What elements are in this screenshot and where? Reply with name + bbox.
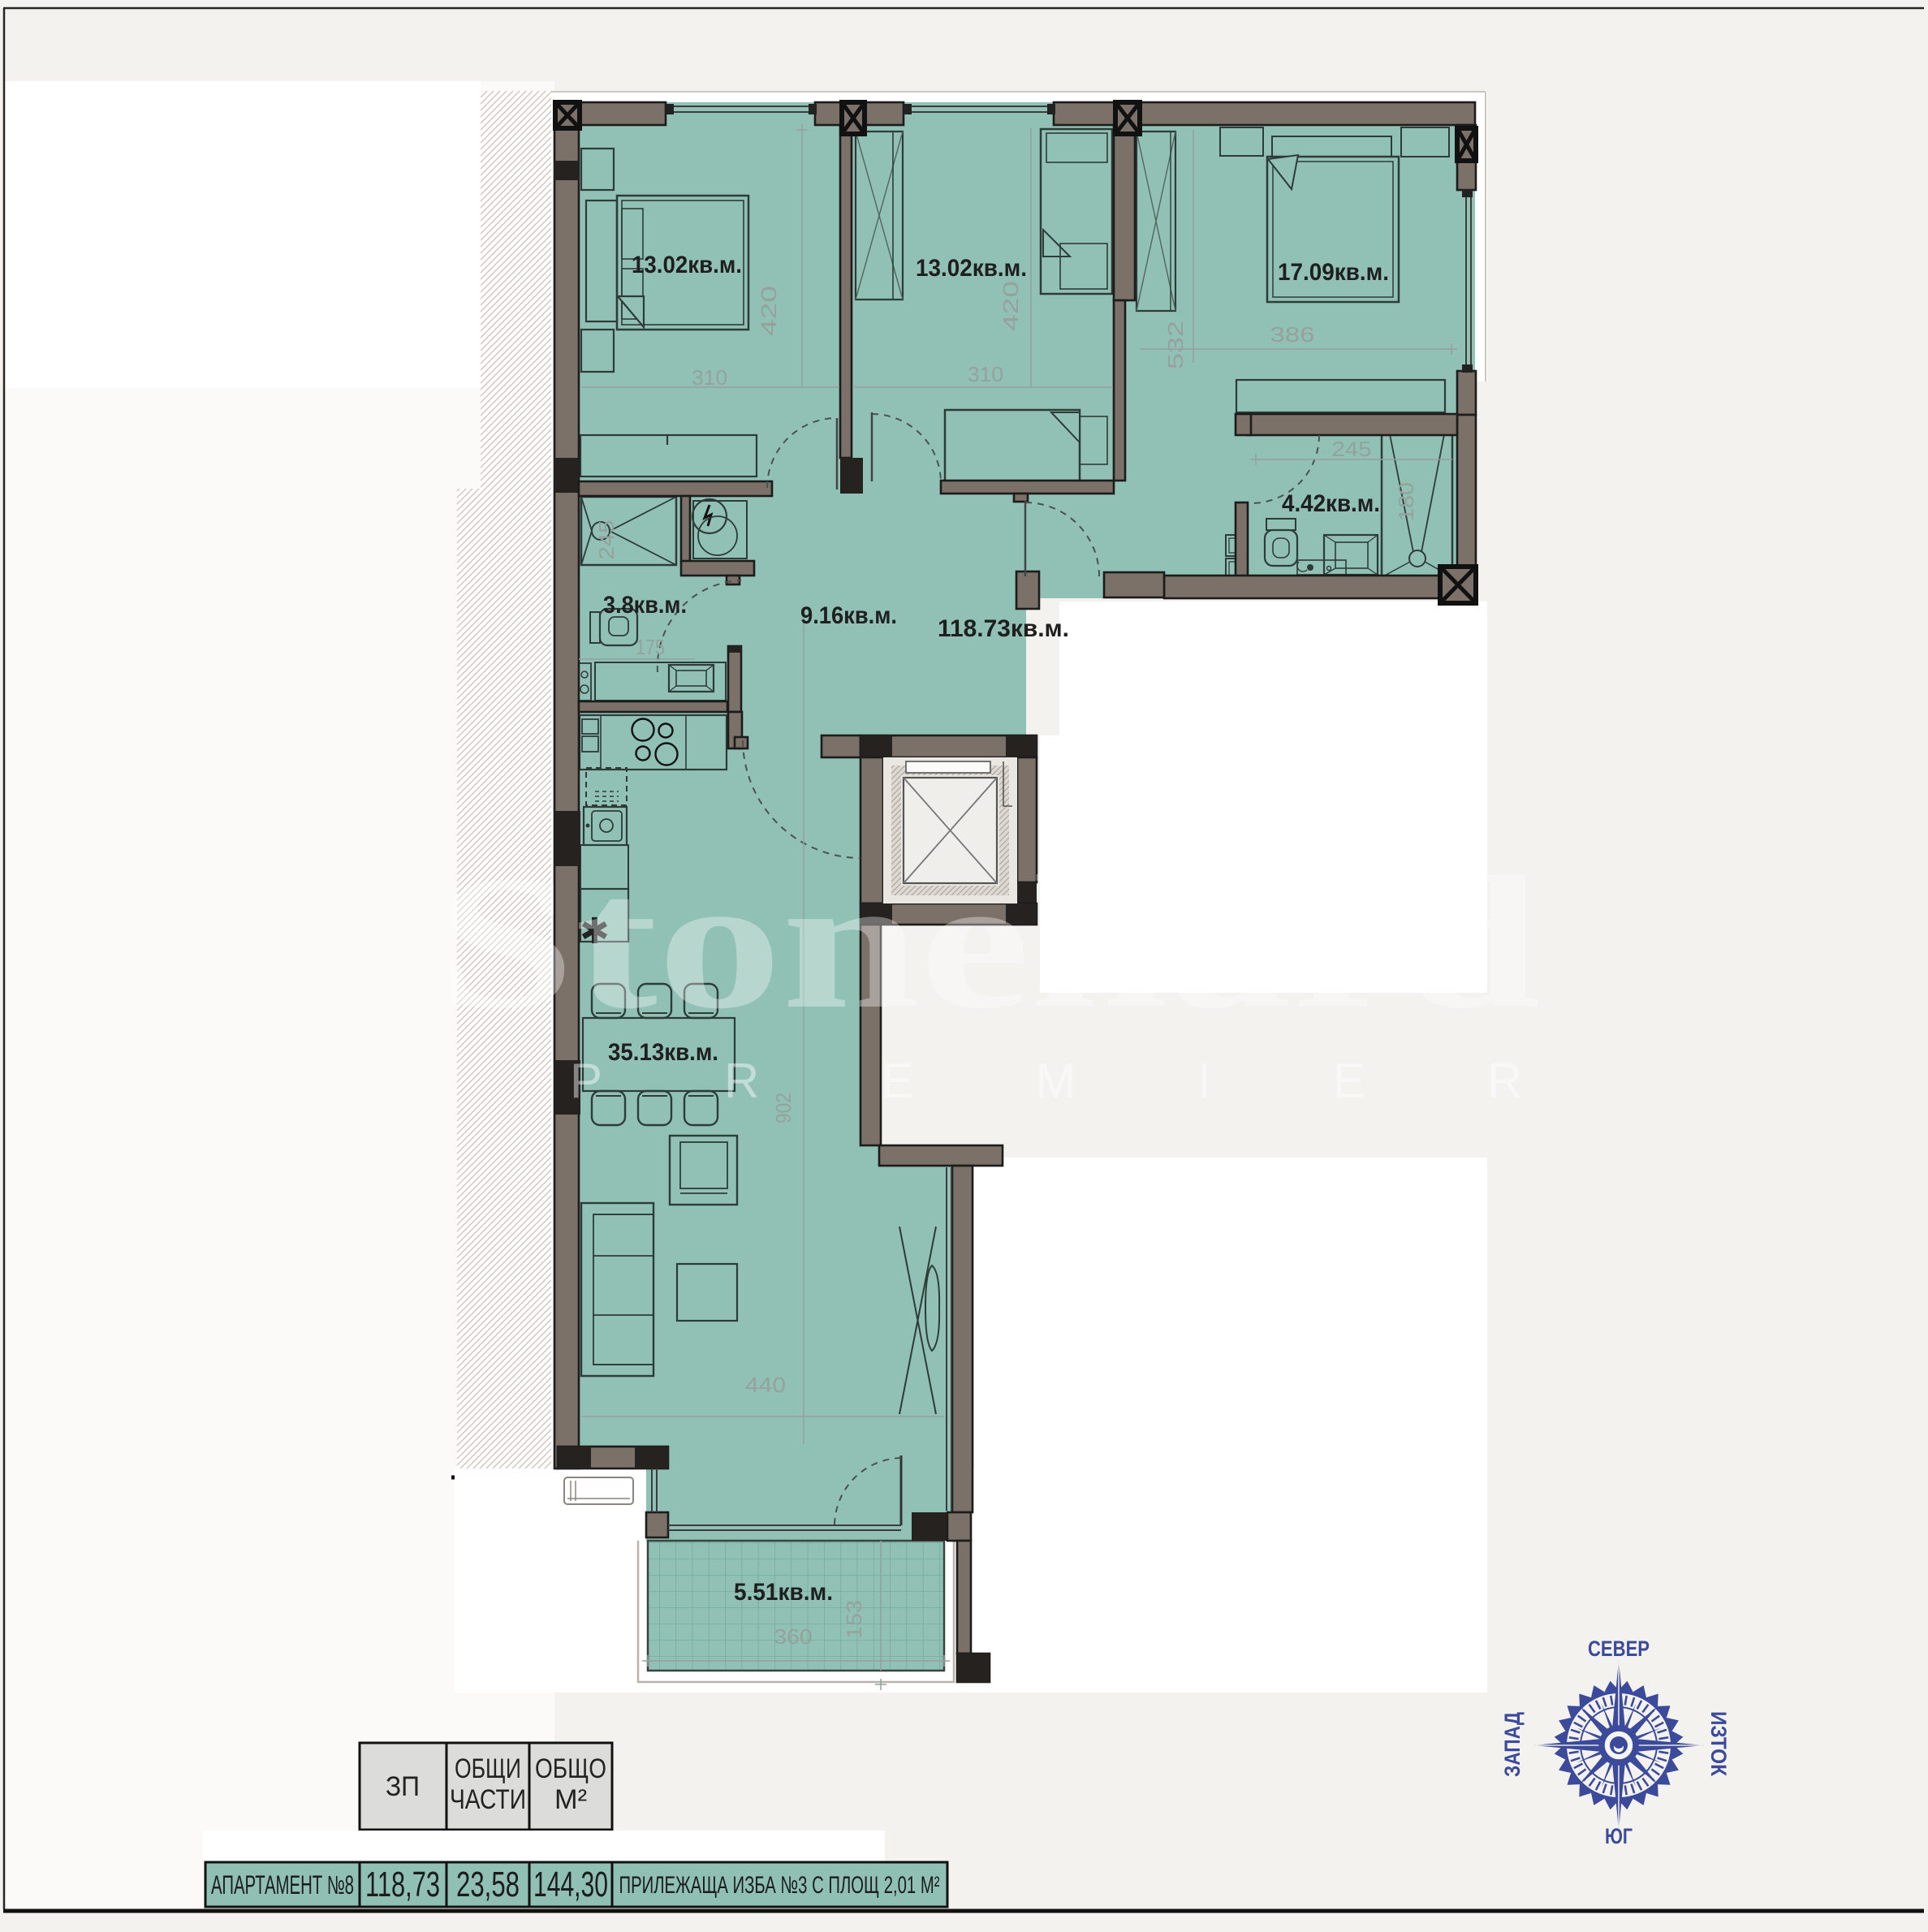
svg-text:245: 245	[594, 520, 619, 560]
svg-text:360: 360	[774, 1624, 813, 1649]
svg-text:118.73кв.м.: 118.73кв.м.	[938, 615, 1069, 642]
svg-text:PREMIER: PREMIER	[570, 1054, 1644, 1108]
svg-text:180: 180	[1394, 482, 1418, 521]
svg-text:ИЗТОК: ИЗТОК	[1706, 1711, 1731, 1776]
svg-text:420: 420	[757, 286, 781, 336]
svg-text:245: 245	[1332, 437, 1372, 461]
svg-text:310: 310	[692, 365, 727, 390]
svg-text:М²: М²	[554, 1784, 587, 1815]
svg-text:3.8кв.м.: 3.8кв.м.	[603, 592, 687, 619]
svg-text:9.16кв.м.: 9.16кв.м.	[800, 602, 897, 629]
svg-text:АПАРТАМЕНТ №8: АПАРТАМЕНТ №8	[211, 1870, 354, 1900]
svg-text:ЧАСТИ: ЧАСТИ	[450, 1784, 526, 1815]
svg-text:5.51кв.м.: 5.51кв.м.	[734, 1579, 833, 1606]
svg-text:13.02кв.м.: 13.02кв.м.	[632, 252, 742, 278]
svg-text:420: 420	[999, 281, 1023, 331]
svg-text:ПРИЛЕЖАЩА ИЗБА №3 С ПЛОЩ 2,01: ПРИЛЕЖАЩА ИЗБА №3 С ПЛОЩ 2,01 М²	[619, 1872, 940, 1899]
svg-text:532: 532	[1163, 321, 1188, 369]
svg-text:ЮГ: ЮГ	[1605, 1824, 1633, 1848]
svg-text:13.02кв.м.: 13.02кв.м.	[916, 255, 1027, 282]
svg-text:153: 153	[842, 1600, 866, 1639]
svg-text:17.09кв.м.: 17.09кв.м.	[1278, 259, 1389, 286]
svg-text:310: 310	[968, 362, 1003, 386]
svg-text:386: 386	[1270, 322, 1315, 347]
svg-text:ЗАПАД: ЗАПАД	[1500, 1712, 1525, 1777]
svg-text:175: 175	[636, 635, 665, 659]
svg-text:ОБЩИ: ОБЩИ	[455, 1753, 521, 1784]
svg-text:ОБЩО: ОБЩО	[535, 1753, 606, 1784]
svg-text:118,73: 118,73	[365, 1865, 440, 1904]
svg-text:144,30: 144,30	[533, 1865, 608, 1904]
svg-text:ЗП: ЗП	[386, 1771, 420, 1802]
svg-text:4.42кв.м.: 4.42кв.м.	[1282, 490, 1380, 517]
svg-text:Stonehard: Stonehard	[437, 837, 1541, 1048]
svg-text:СЕВЕР: СЕВЕР	[1588, 1637, 1650, 1661]
svg-text:23,58: 23,58	[456, 1865, 520, 1904]
svg-text:440: 440	[745, 1373, 786, 1397]
